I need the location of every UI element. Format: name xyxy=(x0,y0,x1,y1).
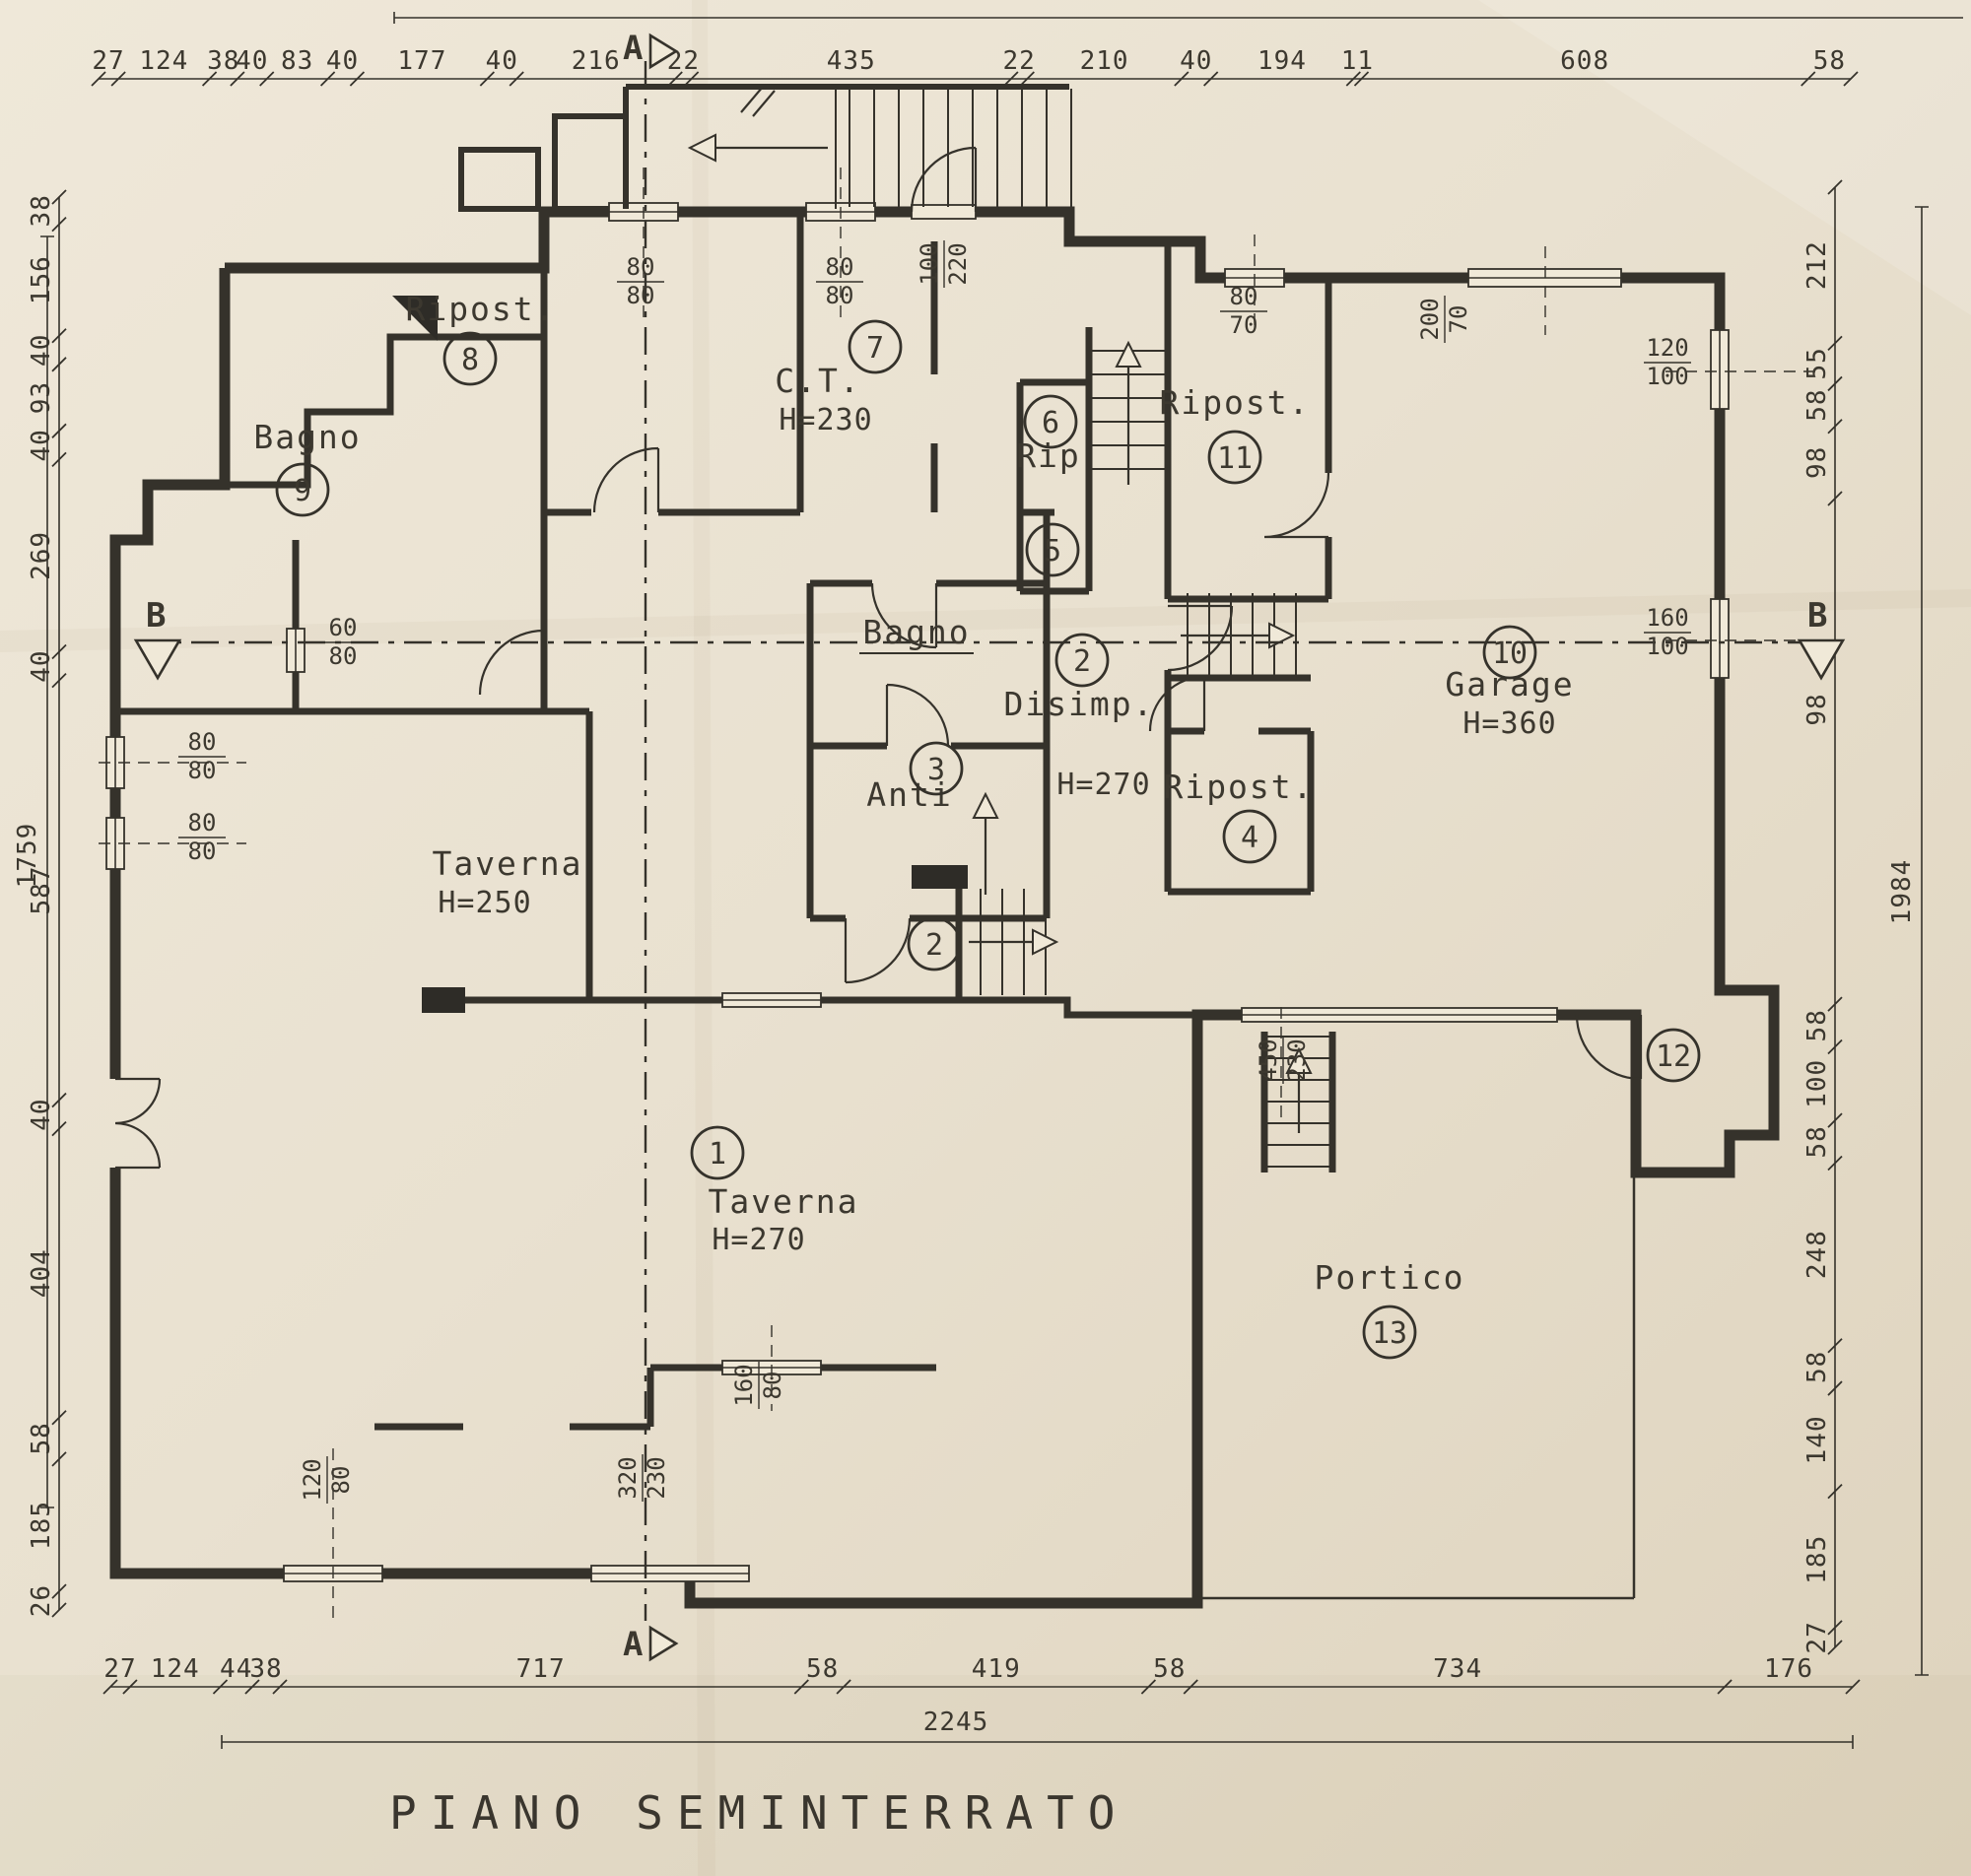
dim-value-left-12: 26 xyxy=(27,1584,56,1617)
dim-value-bottom-8: 734 xyxy=(1433,1654,1482,1684)
dim-value-top-14: 194 xyxy=(1257,46,1307,76)
room-height-garage-10: H=360 xyxy=(1462,706,1556,741)
room-number-taverna-1: 1 xyxy=(709,1137,726,1172)
dim-value-top-11: 22 xyxy=(1002,46,1035,76)
room-number-bagno-9: 9 xyxy=(294,474,311,508)
opening-width-taverna-passage: 160 xyxy=(730,1364,758,1406)
opening-width-ct-window-right: 80 xyxy=(826,253,854,281)
room-name-ripost-4: Ripost. xyxy=(1163,768,1314,806)
room-height-taverna-250: H=250 xyxy=(438,886,531,920)
opening-width-hall-top-door: 100 xyxy=(916,242,943,285)
right-total-value: 1984 xyxy=(1887,859,1917,925)
dim-value-right-12: 27 xyxy=(1802,1621,1832,1653)
opening-height-ct-window-right: 80 xyxy=(826,282,854,309)
dim-value-top-5: 40 xyxy=(326,46,359,76)
dim-value-right-5: 58 xyxy=(1802,1009,1832,1041)
dim-value-top-15: 11 xyxy=(1341,46,1374,76)
room-name-bagno-centrale: Bagno xyxy=(862,613,970,651)
wall-pillar-2 xyxy=(912,865,968,889)
opening-height-garage-top-window: 70 xyxy=(1445,305,1472,334)
opening-width-garage-right-window-upper: 120 xyxy=(1646,334,1688,362)
dim-value-bottom-6: 419 xyxy=(972,1654,1021,1684)
dim-value-bottom-0: 27 xyxy=(103,1654,136,1684)
dim-value-right-10: 140 xyxy=(1802,1415,1832,1464)
dim-value-right-11: 185 xyxy=(1802,1535,1832,1584)
dim-value-left-6: 40 xyxy=(27,649,56,682)
opening-label-garage-right-window-upper: 120100 xyxy=(1644,334,1691,390)
room-number-disimp-2: 2 xyxy=(1073,644,1091,679)
room-name-ct-7: C.T. xyxy=(775,362,860,400)
opening-label-bottom-opening: 320230 xyxy=(614,1454,670,1502)
opening-height-taverna250-window-lower: 80 xyxy=(188,837,217,865)
opening-height-garage-right-window-lower: 100 xyxy=(1646,633,1688,660)
room-name-bagno-9: Bagno xyxy=(253,418,361,456)
dim-value-left-5: 269 xyxy=(27,531,56,580)
dim-value-left-10: 58 xyxy=(27,1422,56,1454)
dim-value-left-8: 40 xyxy=(27,1098,56,1130)
opening-height-garage-door: 230 xyxy=(1283,1038,1311,1081)
room-name-taverna-1: Taverna xyxy=(708,1182,858,1221)
room-number-garage-10: 10 xyxy=(1492,636,1528,671)
dim-value-top-3: 40 xyxy=(236,46,268,76)
dim-value-bottom-5: 58 xyxy=(806,1654,839,1684)
paper-shadow-bottom xyxy=(0,1675,1971,1876)
dim-value-left-3: 93 xyxy=(27,381,56,414)
opening-label-garage-right-window-lower: 160100 xyxy=(1644,604,1691,660)
dim-value-top-8: 216 xyxy=(572,46,621,76)
dim-value-right-1: 55 xyxy=(1802,347,1832,379)
opening-width-garage-top-window: 200 xyxy=(1416,298,1444,340)
opening-height-hall-top-door: 220 xyxy=(944,242,972,285)
dim-value-right-7: 58 xyxy=(1802,1125,1832,1158)
dim-value-right-0: 212 xyxy=(1802,240,1832,290)
room-height-ct-7: H=230 xyxy=(779,403,872,437)
dim-value-top-13: 40 xyxy=(1180,46,1212,76)
room-name-disimp-2: Disimp. xyxy=(1003,685,1154,723)
dim-value-top-1: 124 xyxy=(139,46,188,76)
dim-value-right-6: 100 xyxy=(1802,1059,1832,1108)
room-number-ct-7: 7 xyxy=(866,331,884,366)
room-number-scala-2: 2 xyxy=(925,928,943,963)
drawing-title: PIANO SEMINTERRATO xyxy=(389,1786,1129,1840)
dim-value-left-9: 404 xyxy=(27,1248,56,1298)
room-number-vano-5: 5 xyxy=(1044,534,1061,569)
dim-value-bottom-9: 176 xyxy=(1764,1654,1813,1684)
room-number-portico-13: 13 xyxy=(1372,1316,1407,1351)
opening-width-garage-right-window-lower: 160 xyxy=(1646,604,1688,632)
door-opening-hall-top xyxy=(912,205,976,219)
section-marker-b-left-label: B xyxy=(146,596,166,636)
opening-width-bottom-left-window: 120 xyxy=(299,1458,326,1501)
opening-height-bagno9-window: 80 xyxy=(329,642,358,670)
dim-value-left-2: 40 xyxy=(27,334,56,367)
dim-value-top-17: 58 xyxy=(1813,46,1846,76)
opening-height-ct-window-left: 80 xyxy=(627,282,655,309)
room-name-rip-6: Rip xyxy=(1016,436,1081,475)
dim-value-left-0: 38 xyxy=(27,194,56,227)
opening-height-garage-right-window-upper: 100 xyxy=(1646,363,1688,390)
section-marker-a-bottom-label: A xyxy=(623,1625,643,1664)
opening-height-bottom-opening: 230 xyxy=(643,1456,670,1499)
opening-width-ct-window-left: 80 xyxy=(627,253,655,281)
room-height-disimp-2: H=270 xyxy=(1056,768,1150,802)
dim-value-right-9: 58 xyxy=(1802,1351,1832,1383)
dim-value-top-10: 435 xyxy=(827,46,876,76)
wall-pillar-1 xyxy=(422,987,465,1013)
opening-width-taverna250-window-upper: 80 xyxy=(188,728,217,756)
dim-value-right-8: 248 xyxy=(1802,1230,1832,1279)
opening-height-taverna250-window-upper: 80 xyxy=(188,757,217,784)
room-number-ingresso-12: 12 xyxy=(1656,1039,1691,1074)
room-number-ripost-8: 8 xyxy=(461,343,479,377)
opening-height-taverna-passage: 80 xyxy=(759,1372,786,1400)
dim-value-bottom-2: 44 xyxy=(220,1654,252,1684)
opening-label-hall-top-door: 100220 xyxy=(916,240,972,288)
room-bagno-centrale: Bagno xyxy=(859,613,974,653)
floor-plan-drawing: 2712438408340177402162243522210401941160… xyxy=(0,0,1971,1876)
dim-value-left-1: 156 xyxy=(27,255,56,304)
opening-width-bagno9-window: 60 xyxy=(329,614,358,641)
dim-value-right-3: 98 xyxy=(1802,446,1832,479)
room-name-ripost-11: Ripost. xyxy=(1159,383,1310,422)
room-name-ripost-8: Ripost. xyxy=(405,290,556,328)
opening-label-garage-door: 450230 xyxy=(1255,1037,1311,1084)
room-name-portico-13: Portico xyxy=(1314,1258,1464,1297)
room-number-rip-6: 6 xyxy=(1042,406,1059,440)
room-number-ripost-4: 4 xyxy=(1241,821,1258,855)
opening-height-bottom-left-window: 80 xyxy=(327,1466,355,1495)
room-number-ripost-11: 11 xyxy=(1217,441,1253,476)
dim-value-top-4: 83 xyxy=(281,46,313,76)
dim-value-top-0: 27 xyxy=(92,46,124,76)
opening-width-bottom-opening: 320 xyxy=(614,1456,642,1499)
scanned-floor-plan-sheet: 2712438408340177402162243522210401941160… xyxy=(0,0,1971,1876)
opening-width-taverna250-window-lower: 80 xyxy=(188,809,217,837)
dim-value-top-7: 40 xyxy=(486,46,518,76)
dim-value-top-16: 608 xyxy=(1560,46,1609,76)
dim-value-left-4: 40 xyxy=(27,429,56,461)
room-name-taverna-250: Taverna xyxy=(432,844,582,883)
dim-value-bottom-3: 38 xyxy=(249,1654,282,1684)
section-marker-a-top-label: A xyxy=(623,29,643,68)
dim-value-right-2: 58 xyxy=(1802,388,1832,421)
dim-value-bottom-4: 717 xyxy=(516,1654,566,1684)
bottom-total-value: 2245 xyxy=(923,1708,989,1737)
dim-value-top-6: 177 xyxy=(397,46,446,76)
left-total-value: 1759 xyxy=(13,823,42,889)
room-height-taverna-1: H=270 xyxy=(712,1223,805,1257)
section-b-height-value: 98 xyxy=(1802,693,1832,725)
opening-height-ripost11-window: 70 xyxy=(1230,311,1258,339)
dim-value-bottom-7: 58 xyxy=(1153,1654,1186,1684)
room-number-anti-3: 3 xyxy=(927,753,945,787)
opening-width-garage-door: 450 xyxy=(1255,1038,1282,1081)
dim-value-bottom-1: 124 xyxy=(151,1654,200,1684)
dim-value-top-12: 210 xyxy=(1080,46,1129,76)
section-marker-b-right-label: B xyxy=(1807,596,1827,636)
opening-width-ripost11-window: 80 xyxy=(1230,283,1258,310)
